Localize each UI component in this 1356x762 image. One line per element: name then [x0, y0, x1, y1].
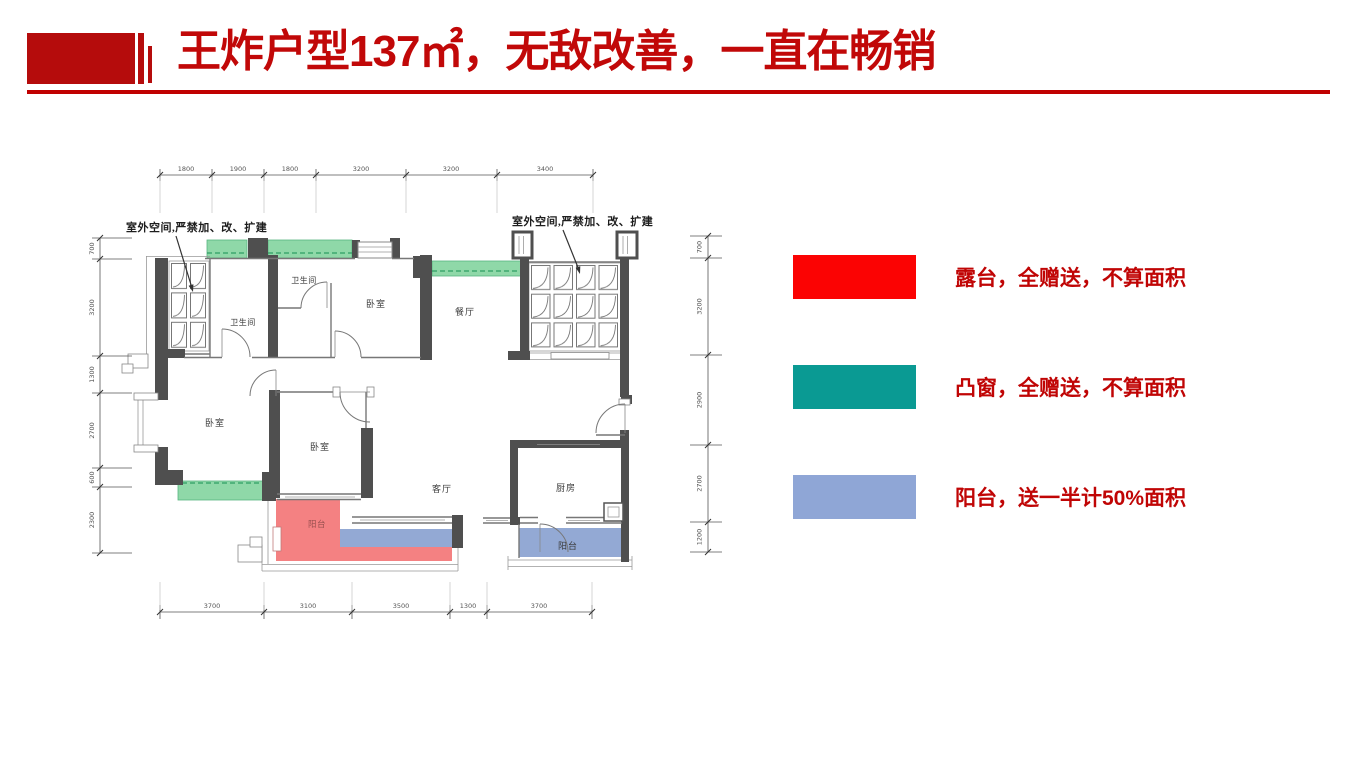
- bath1-door-arc: [222, 329, 250, 357]
- column-post-left: [513, 232, 532, 258]
- dim-right-1: 700: [696, 241, 704, 253]
- outdoor-note-left: 室外空间,严禁加、改、扩建: [126, 220, 268, 234]
- room-label-kitchen: 厨房: [556, 482, 576, 493]
- dim-bottom-3: 3500: [393, 602, 410, 610]
- bay-window-zones: [178, 240, 521, 500]
- entry-door-arc: [596, 404, 625, 433]
- dim-left-6: 2300: [88, 512, 96, 529]
- room-label-balcony-right: 阳台: [558, 540, 578, 551]
- dim-top-6: 3400: [537, 165, 554, 173]
- dim-bottom-1: 3700: [204, 602, 221, 610]
- outdoor-grid-left: [170, 262, 208, 350]
- room-label-bedroom-left: 卧室: [205, 417, 225, 428]
- room-label-terrace-balcony: 阳台: [308, 519, 326, 529]
- column-post-right: [617, 232, 637, 258]
- dim-left-2: 3200: [88, 299, 96, 316]
- dim-top-5: 3200: [443, 165, 460, 173]
- dim-bottom-5: 3700: [531, 602, 548, 610]
- dim-bottom-2: 3100: [300, 602, 317, 610]
- dim-right-3: 2900: [696, 392, 704, 409]
- dim-left-5: 600: [88, 471, 96, 483]
- dimensions-bottom: 3700 3100 3500 1300 3700: [157, 582, 595, 619]
- floor-plan: 1800 1900 1800 3200 3200 3400 3700 3100 …: [0, 0, 1356, 762]
- dimensions-left: 700 3200 1300 2700 600 2300: [88, 235, 132, 556]
- room-label-bedroom-center: 卧室: [310, 441, 330, 452]
- dim-top-2: 1900: [230, 165, 247, 173]
- room-label-dining: 餐厅: [455, 306, 475, 317]
- dimensions-top: 1800 1900 1800 3200 3200 3400: [157, 165, 596, 213]
- outdoor-grid-right: [530, 264, 620, 350]
- dim-bottom-4: 1300: [460, 602, 477, 610]
- dim-right-2: 3200: [696, 298, 704, 315]
- dimensions-right: 700 3200 2900 2700 1200: [690, 233, 722, 555]
- dim-left-4: 2700: [88, 422, 96, 439]
- room-label-bath-1: 卫生间: [230, 317, 256, 327]
- bedroom-top-door-arc: [335, 331, 361, 357]
- dim-right-5: 1200: [696, 529, 704, 546]
- dim-left-3: 1300: [88, 366, 96, 383]
- dim-right-4: 2700: [696, 475, 704, 492]
- dim-top-4: 3200: [353, 165, 370, 173]
- dim-top-1: 1800: [178, 165, 195, 173]
- outdoor-note-right: 室外空间,严禁加、改、扩建: [512, 214, 654, 228]
- room-label-bedroom-top: 卧室: [366, 298, 386, 309]
- slide: { "header": { "title": "王炸户型137㎡，无敌改善，一直…: [0, 0, 1356, 762]
- dim-left-1: 700: [88, 242, 96, 254]
- dim-top-3: 1800: [282, 165, 299, 173]
- bath2-door-arc: [301, 282, 327, 308]
- room-label-living: 客厅: [432, 483, 452, 494]
- room-label-bath-2: 卫生间: [291, 275, 317, 285]
